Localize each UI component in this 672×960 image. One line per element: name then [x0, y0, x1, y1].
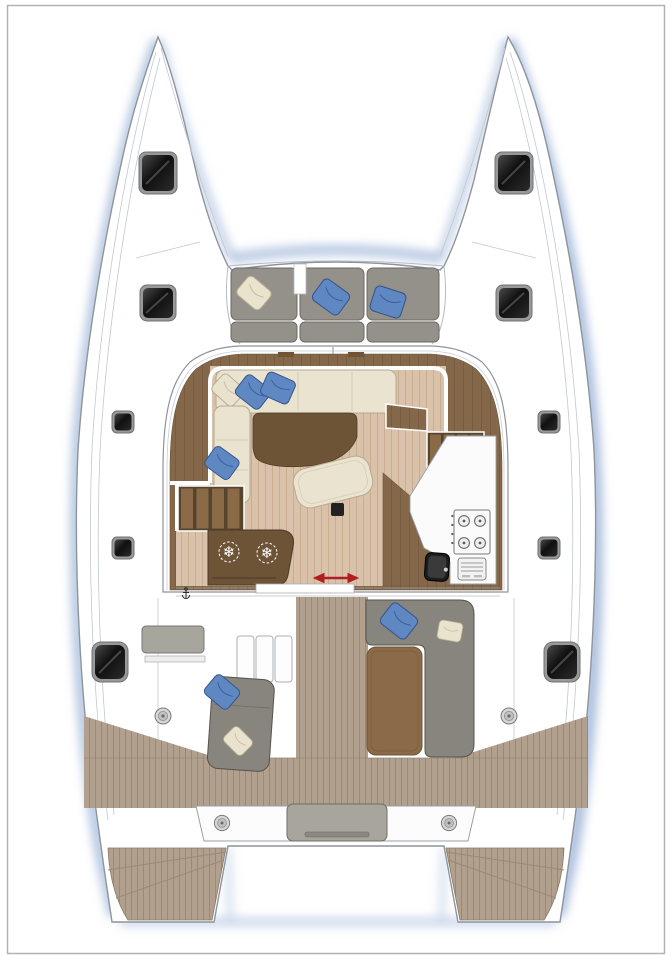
cockpit-table — [367, 647, 422, 755]
forward-seat-cushion-starboard — [367, 322, 439, 342]
deck-hatch-icon — [538, 411, 560, 433]
port-companionway-stairs — [178, 486, 244, 531]
winch-icon — [155, 708, 171, 724]
cockpit-sole-teak — [84, 758, 588, 808]
hull-window-icon — [92, 642, 128, 682]
forward-seat-cushion-center — [300, 322, 364, 342]
starboard-transom-platform — [446, 848, 564, 920]
svg-text:❄: ❄ — [223, 543, 236, 561]
fridge-cabinet: ❄ ❄ — [208, 530, 294, 585]
deck-hatch-icon — [139, 152, 177, 194]
winch-icon — [501, 708, 517, 724]
svg-text:❄: ❄ — [261, 544, 274, 562]
nav-seat — [386, 404, 427, 431]
winch-icon — [214, 815, 229, 830]
floor-plan-canvas: ❄ ❄ — [0, 0, 672, 960]
saloon: ❄ ❄ — [163, 346, 508, 599]
deck-hatch-icon — [496, 285, 532, 321]
hull-window-icon — [544, 642, 580, 682]
winch-icon — [441, 815, 456, 830]
forward-cockpit — [227, 261, 446, 344]
door-panel — [256, 584, 354, 593]
deck-hatch-icon — [140, 285, 176, 321]
forward-seat-cushion-port — [231, 322, 297, 342]
hatch-handle — [305, 832, 369, 837]
deck-hatch-icon — [112, 537, 134, 559]
catamaran-floor-plan: ❄ ❄ — [0, 0, 672, 960]
cockpit-walkway-teak — [296, 597, 368, 759]
deck-hatch-icon — [112, 411, 134, 433]
roof-rim-notch — [278, 352, 294, 357]
cockpit-steps — [237, 636, 292, 682]
port-bench-shelf — [145, 656, 205, 662]
galley-stove — [451, 510, 490, 554]
port-cockpit-bench — [142, 626, 204, 653]
pillow-cream — [437, 619, 464, 642]
deck-hatch-icon — [538, 537, 560, 559]
galley-oven — [458, 558, 486, 580]
forward-seat-armrest-gap — [294, 264, 306, 294]
galley-sink — [424, 552, 450, 582]
roof-rim-notch — [348, 352, 364, 357]
deck-hatch-icon — [495, 152, 533, 194]
table-pedestal — [331, 503, 344, 516]
port-transom-platform — [108, 848, 226, 920]
